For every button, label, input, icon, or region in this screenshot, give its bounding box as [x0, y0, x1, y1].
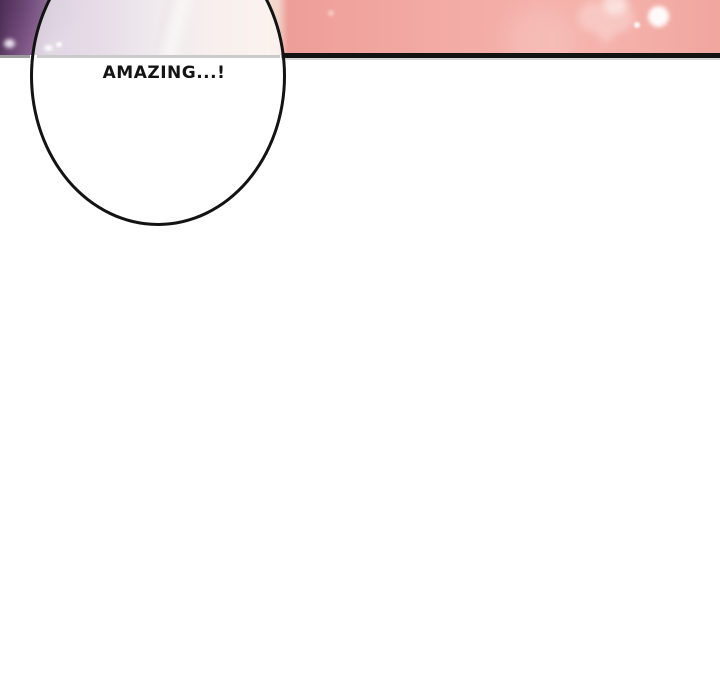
speech-bubble — [30, 0, 286, 226]
bokeh-glow — [648, 6, 669, 27]
sparkle-dot — [4, 39, 15, 48]
speech-bubble-text: AMAZING...! — [90, 62, 238, 84]
panel-divider-gray-middle — [37, 55, 280, 58]
comic-page: AMAZING...! — [0, 0, 720, 700]
panel-divider-shadow — [281, 58, 720, 60]
bokeh-glow — [505, 8, 575, 55]
bokeh-glow — [634, 22, 640, 28]
panel-divider-gray-left — [0, 55, 30, 58]
bokeh-glow — [328, 10, 334, 16]
